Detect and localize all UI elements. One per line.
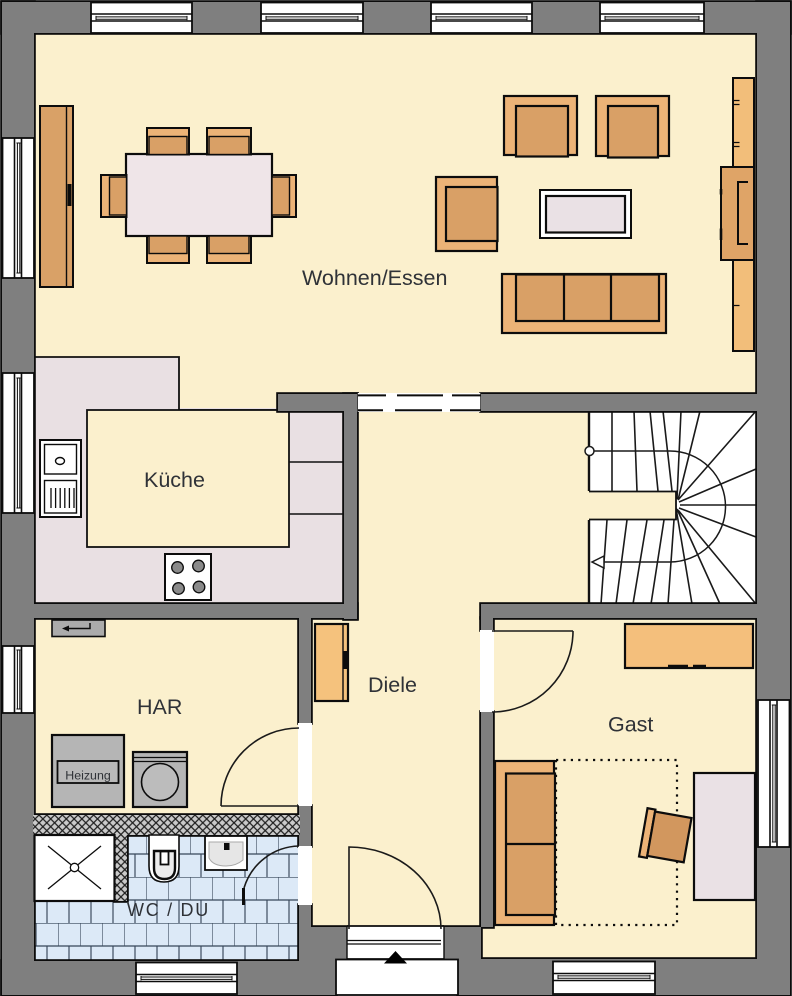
svg-text:WC / DU: WC / DU — [127, 900, 210, 920]
svg-text:HAR: HAR — [137, 695, 182, 719]
svg-text:Diele: Diele — [368, 673, 417, 697]
svg-text:Küche: Küche — [144, 468, 205, 492]
svg-text:Gast: Gast — [608, 713, 653, 737]
svg-text:Heizung: Heizung — [65, 769, 111, 783]
svg-text:Wohnen/Essen: Wohnen/Essen — [302, 266, 447, 290]
